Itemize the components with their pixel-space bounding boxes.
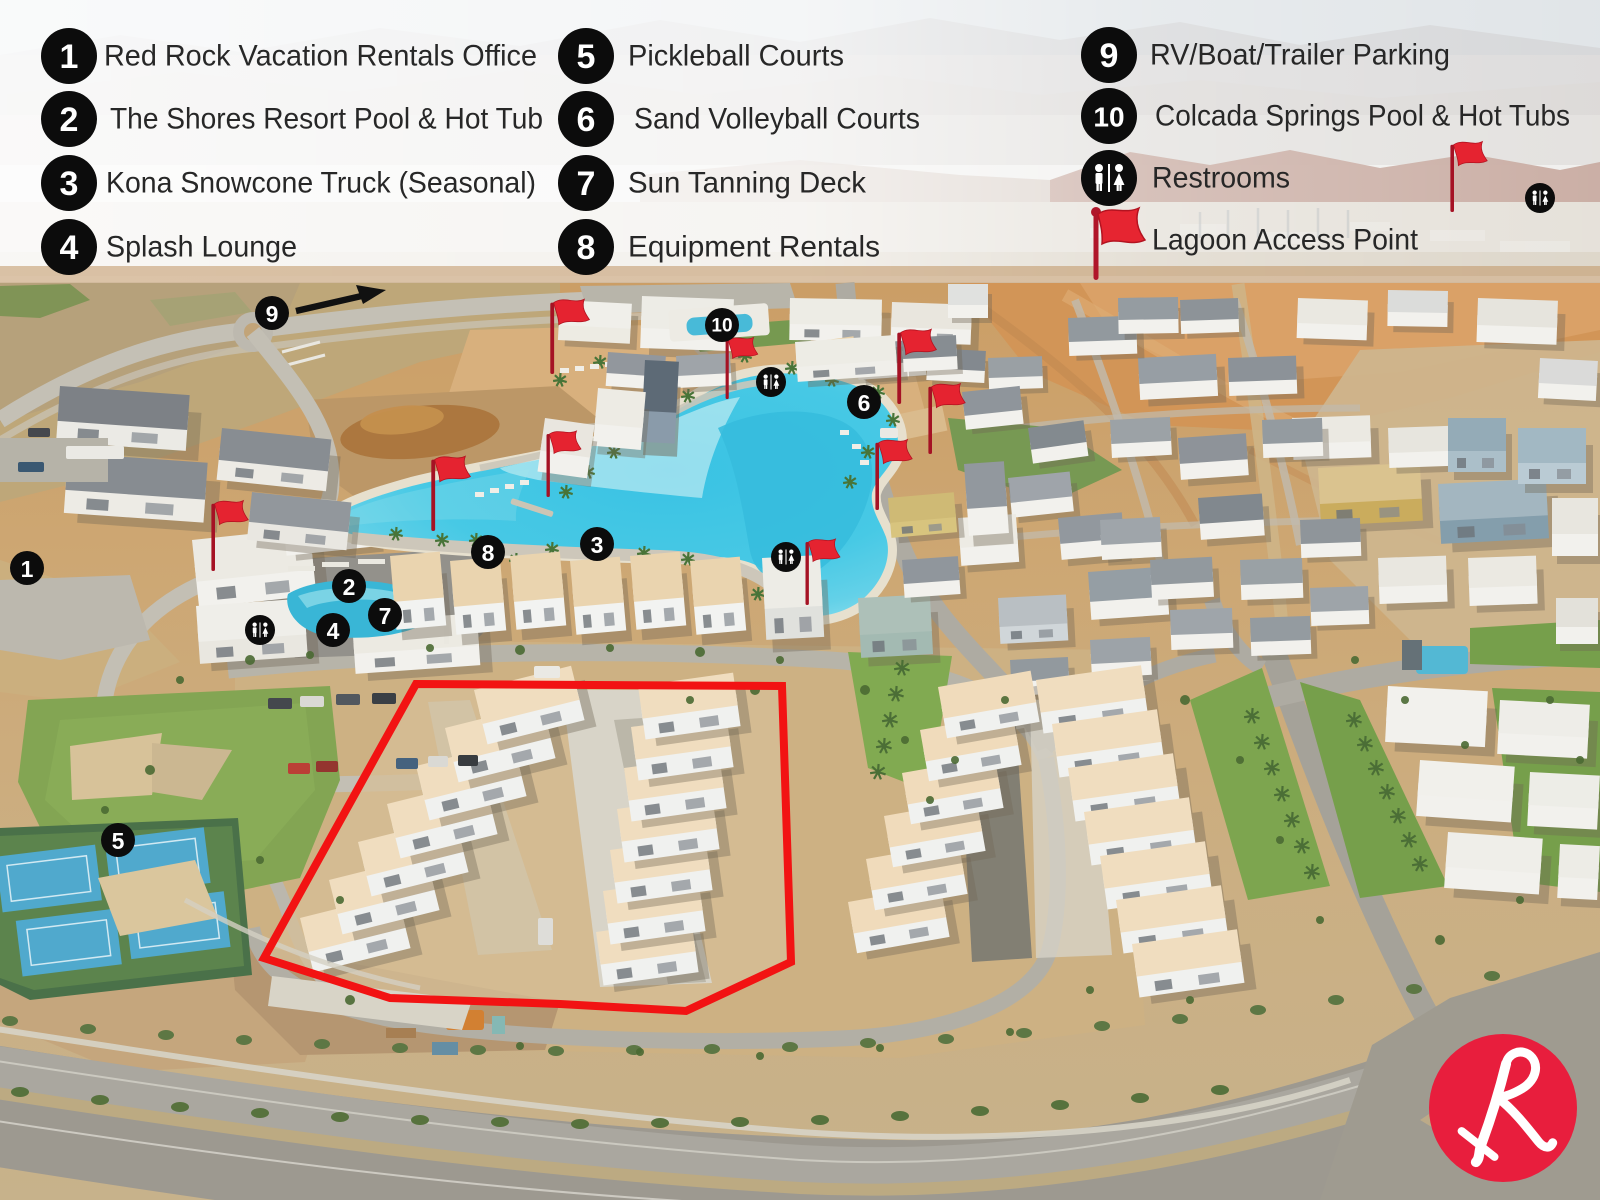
svg-text:Equipment Rentals: Equipment Rentals xyxy=(628,231,880,264)
svg-text:4: 4 xyxy=(327,618,340,644)
svg-text:Red Rock Vacation Rentals Offi: Red Rock Vacation Rentals Office xyxy=(104,40,537,73)
svg-text:2: 2 xyxy=(343,574,356,600)
svg-text:7: 7 xyxy=(577,165,596,203)
svg-text:6: 6 xyxy=(577,101,596,139)
svg-text:8: 8 xyxy=(577,229,596,267)
svg-text:2: 2 xyxy=(60,101,79,139)
svg-text:Restrooms: Restrooms xyxy=(1152,162,1290,195)
svg-text:The Shores Resort Pool & Hot T: The Shores Resort Pool & Hot Tub xyxy=(110,103,543,136)
svg-text:Pickleball Courts: Pickleball Courts xyxy=(628,40,844,73)
svg-text:1: 1 xyxy=(60,38,79,76)
svg-text:9: 9 xyxy=(266,301,279,327)
svg-text:Splash Lounge: Splash Lounge xyxy=(106,231,297,264)
svg-text:4: 4 xyxy=(60,229,79,267)
svg-text:6: 6 xyxy=(858,390,871,416)
svg-text:5: 5 xyxy=(112,828,125,854)
svg-text:3: 3 xyxy=(60,165,79,203)
svg-text:10: 10 xyxy=(1093,102,1124,133)
svg-text:8: 8 xyxy=(482,540,495,566)
svg-text:Sand Volleyball Courts: Sand Volleyball Courts xyxy=(634,103,920,136)
svg-text:1: 1 xyxy=(21,556,34,582)
svg-text:5: 5 xyxy=(577,38,596,76)
svg-text:9: 9 xyxy=(1100,37,1119,75)
svg-text:Kona Snowcone Truck (Seasonal): Kona Snowcone Truck (Seasonal) xyxy=(106,167,536,200)
svg-text:Lagoon Access Point: Lagoon Access Point xyxy=(1152,224,1419,257)
svg-text:Sun Tanning Deck: Sun Tanning Deck xyxy=(628,167,867,200)
svg-text:7: 7 xyxy=(379,603,392,629)
svg-text:10: 10 xyxy=(711,316,732,337)
svg-text:Colcada Springs Pool & Hot Tub: Colcada Springs Pool & Hot Tubs xyxy=(1155,100,1570,133)
svg-text:RV/Boat/Trailer Parking: RV/Boat/Trailer Parking xyxy=(1150,39,1450,72)
svg-text:3: 3 xyxy=(591,532,604,558)
